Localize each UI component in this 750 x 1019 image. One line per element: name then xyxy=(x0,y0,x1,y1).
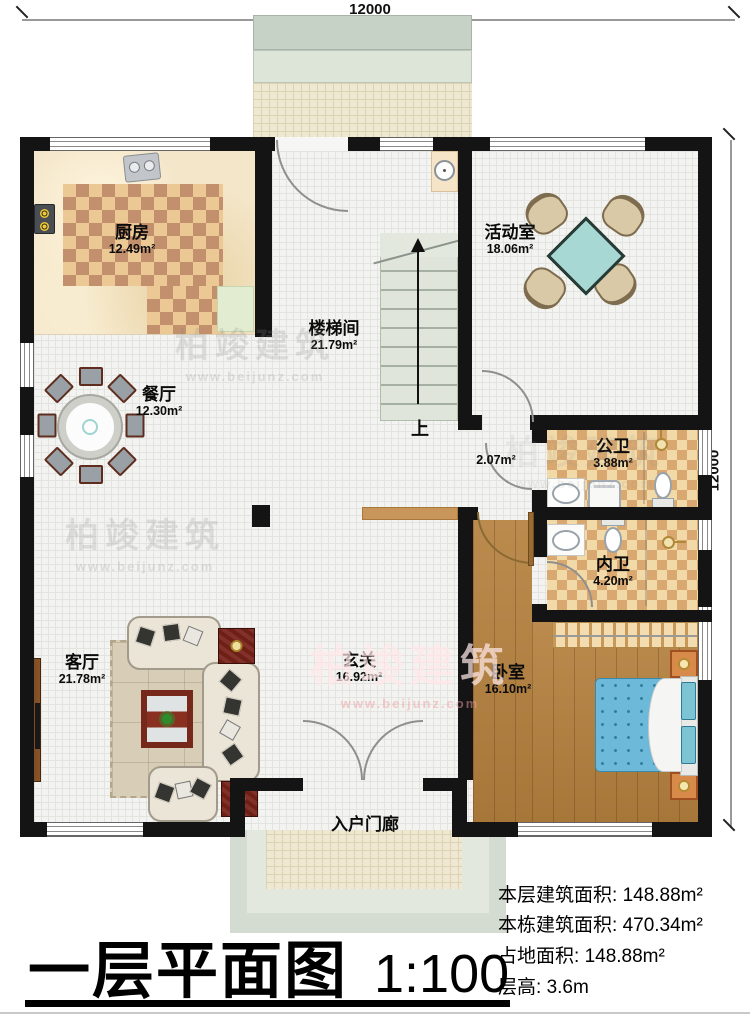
dining-room-label: 餐厅 12.30m² xyxy=(124,386,194,418)
wall xyxy=(255,137,272,337)
side-table xyxy=(218,628,255,664)
window xyxy=(380,137,433,151)
wall xyxy=(652,822,712,837)
stairwell-label: 楼梯间 21.79m² xyxy=(292,320,376,352)
toilet-icon xyxy=(654,472,672,499)
wall xyxy=(533,507,712,520)
toilet-icon xyxy=(604,527,622,553)
up-arrow-icon xyxy=(411,238,425,252)
dining-chair xyxy=(38,414,57,438)
window xyxy=(20,343,34,387)
title-block: 一层平面图 1:100 xyxy=(28,920,509,1010)
balcony-floor xyxy=(253,83,472,139)
wall xyxy=(458,507,473,780)
window xyxy=(698,423,712,475)
divider xyxy=(0,1012,750,1014)
stat-row: 占地面积: 148.88m² xyxy=(498,941,748,968)
sofa-chaise xyxy=(202,662,260,782)
kitchen-rug xyxy=(147,286,223,334)
window xyxy=(47,822,143,837)
wall xyxy=(458,415,482,430)
wall xyxy=(698,475,712,508)
wall xyxy=(698,550,712,607)
wall xyxy=(20,822,47,837)
wall xyxy=(230,778,245,837)
corridor-area-label: 2.07m² xyxy=(466,454,526,468)
wardrobe xyxy=(552,622,698,648)
foyer-label: 玄关 16.92m² xyxy=(314,652,404,684)
pillow xyxy=(681,726,696,764)
stat-row: 本层建筑面积: 148.88m² xyxy=(498,880,748,907)
dimension-line-right xyxy=(730,140,732,828)
kitchen-mat xyxy=(217,286,254,332)
coffee-table xyxy=(141,690,193,748)
dining-table xyxy=(57,394,123,460)
dimension-tick xyxy=(16,6,29,19)
wall xyxy=(467,822,518,837)
window xyxy=(490,137,645,151)
window xyxy=(518,822,652,837)
living-room-label: 客厅 21.78m² xyxy=(46,654,118,686)
wall xyxy=(530,415,712,430)
nightstand xyxy=(670,772,698,800)
dimension-tick xyxy=(723,819,736,832)
dimension-tick xyxy=(723,128,736,141)
stairs-up-label: 上 xyxy=(406,420,434,440)
stove-icon xyxy=(34,204,55,234)
public-bath-label: 公卫 3.88m² xyxy=(582,438,644,470)
up-arrow-stem xyxy=(417,252,419,404)
bedroom-label: 卧室 16.10m² xyxy=(470,664,546,696)
page-title: 一层平面图 xyxy=(28,920,348,1010)
wall xyxy=(452,778,467,837)
wall xyxy=(532,490,547,557)
wall xyxy=(698,680,712,837)
floor-plan: 12000 12000 xyxy=(0,0,750,1019)
dining-chair xyxy=(79,465,103,484)
kitchen-sink-icon xyxy=(123,152,162,183)
bath-counter xyxy=(547,524,585,556)
balcony-rail xyxy=(253,15,472,50)
porch-label: 入户门廊 xyxy=(295,816,435,835)
wall xyxy=(20,137,34,343)
bed-sheet xyxy=(648,678,682,772)
wall-pier xyxy=(252,505,270,527)
nightstand xyxy=(670,650,698,678)
wall xyxy=(20,477,34,837)
shower-icon xyxy=(674,541,686,543)
window xyxy=(20,435,34,477)
floor-threshold xyxy=(362,507,458,520)
title-underline xyxy=(25,1000,510,1007)
basin-counter xyxy=(431,151,458,192)
wall xyxy=(532,610,712,622)
shower-icon xyxy=(662,536,675,549)
stat-row: 本栋建筑面积: 470.34m² xyxy=(498,910,748,937)
bath-counter xyxy=(547,478,585,508)
stairs xyxy=(380,233,458,421)
kitchen-label: 厨房 12.49m² xyxy=(96,224,168,256)
sofa xyxy=(148,766,218,822)
shower-divider xyxy=(645,518,647,606)
dimension-tick xyxy=(728,6,741,19)
balcony-step xyxy=(253,50,472,83)
wall xyxy=(458,144,472,423)
pillow xyxy=(681,682,696,720)
private-bath-label: 内卫 4.20m² xyxy=(582,556,644,588)
wall xyxy=(245,778,303,791)
activity-room-label: 活动室 18.06m² xyxy=(468,224,552,256)
wall xyxy=(698,137,712,423)
scale-label: 1:100 xyxy=(374,943,509,1005)
wall xyxy=(348,137,380,151)
wall xyxy=(532,430,547,443)
dining-chair xyxy=(79,367,103,386)
stat-row: 层高: 3.6m xyxy=(498,972,748,999)
bedroom-door-leaf xyxy=(528,512,534,566)
wall xyxy=(20,387,34,435)
window xyxy=(50,137,210,151)
sofa xyxy=(127,616,221,670)
shower-icon xyxy=(655,438,668,451)
